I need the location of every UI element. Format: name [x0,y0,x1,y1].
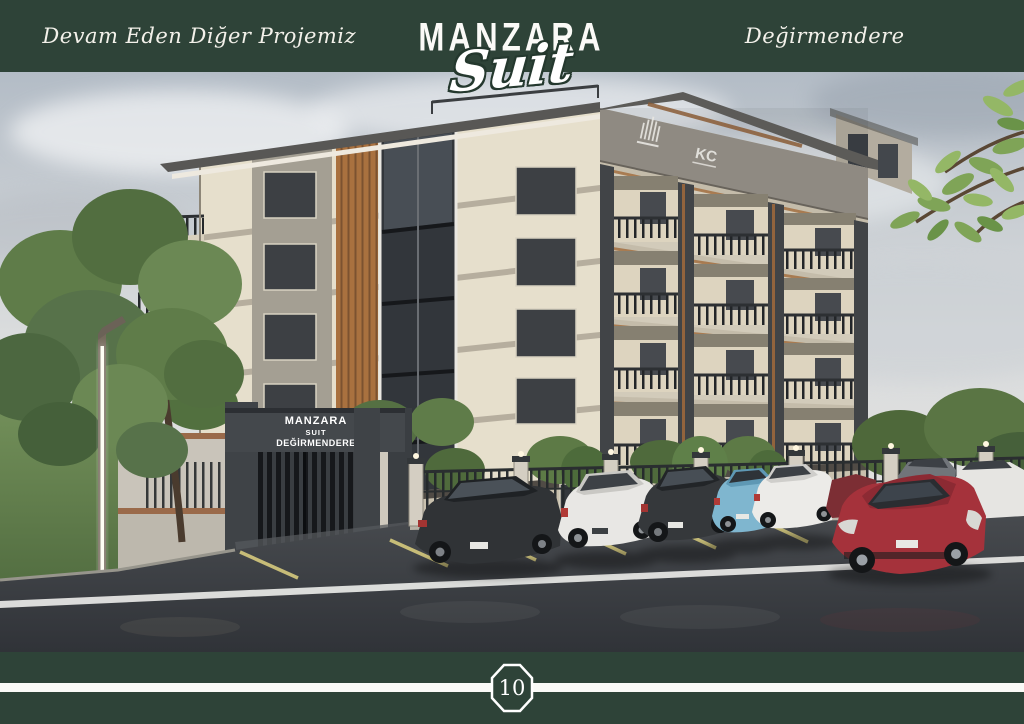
render-scene: KC [0,72,1024,652]
header-location-text: Değirmendere [626,24,1024,48]
building-render: KC [0,72,1024,652]
gate-sign-line1: MANZARA [285,415,348,427]
gate-sign-line2: SUIT [305,428,326,437]
front-facade: KC [600,108,868,476]
footer-band: 10 [0,652,1024,724]
page-number: 10 [499,676,526,700]
project-script-logo: Suit [448,34,576,99]
gate-sign-line3: DEĞİRMENDERE [276,437,356,448]
page-number-badge: 10 [488,662,536,714]
brochure-page: Devam Eden Diğer Projemiz MANZARA Değirm… [0,0,1024,724]
header-band: Devam Eden Diğer Projemiz MANZARA Değirm… [0,0,1024,72]
header-left-text: Devam Eden Diğer Projemiz [0,24,398,48]
